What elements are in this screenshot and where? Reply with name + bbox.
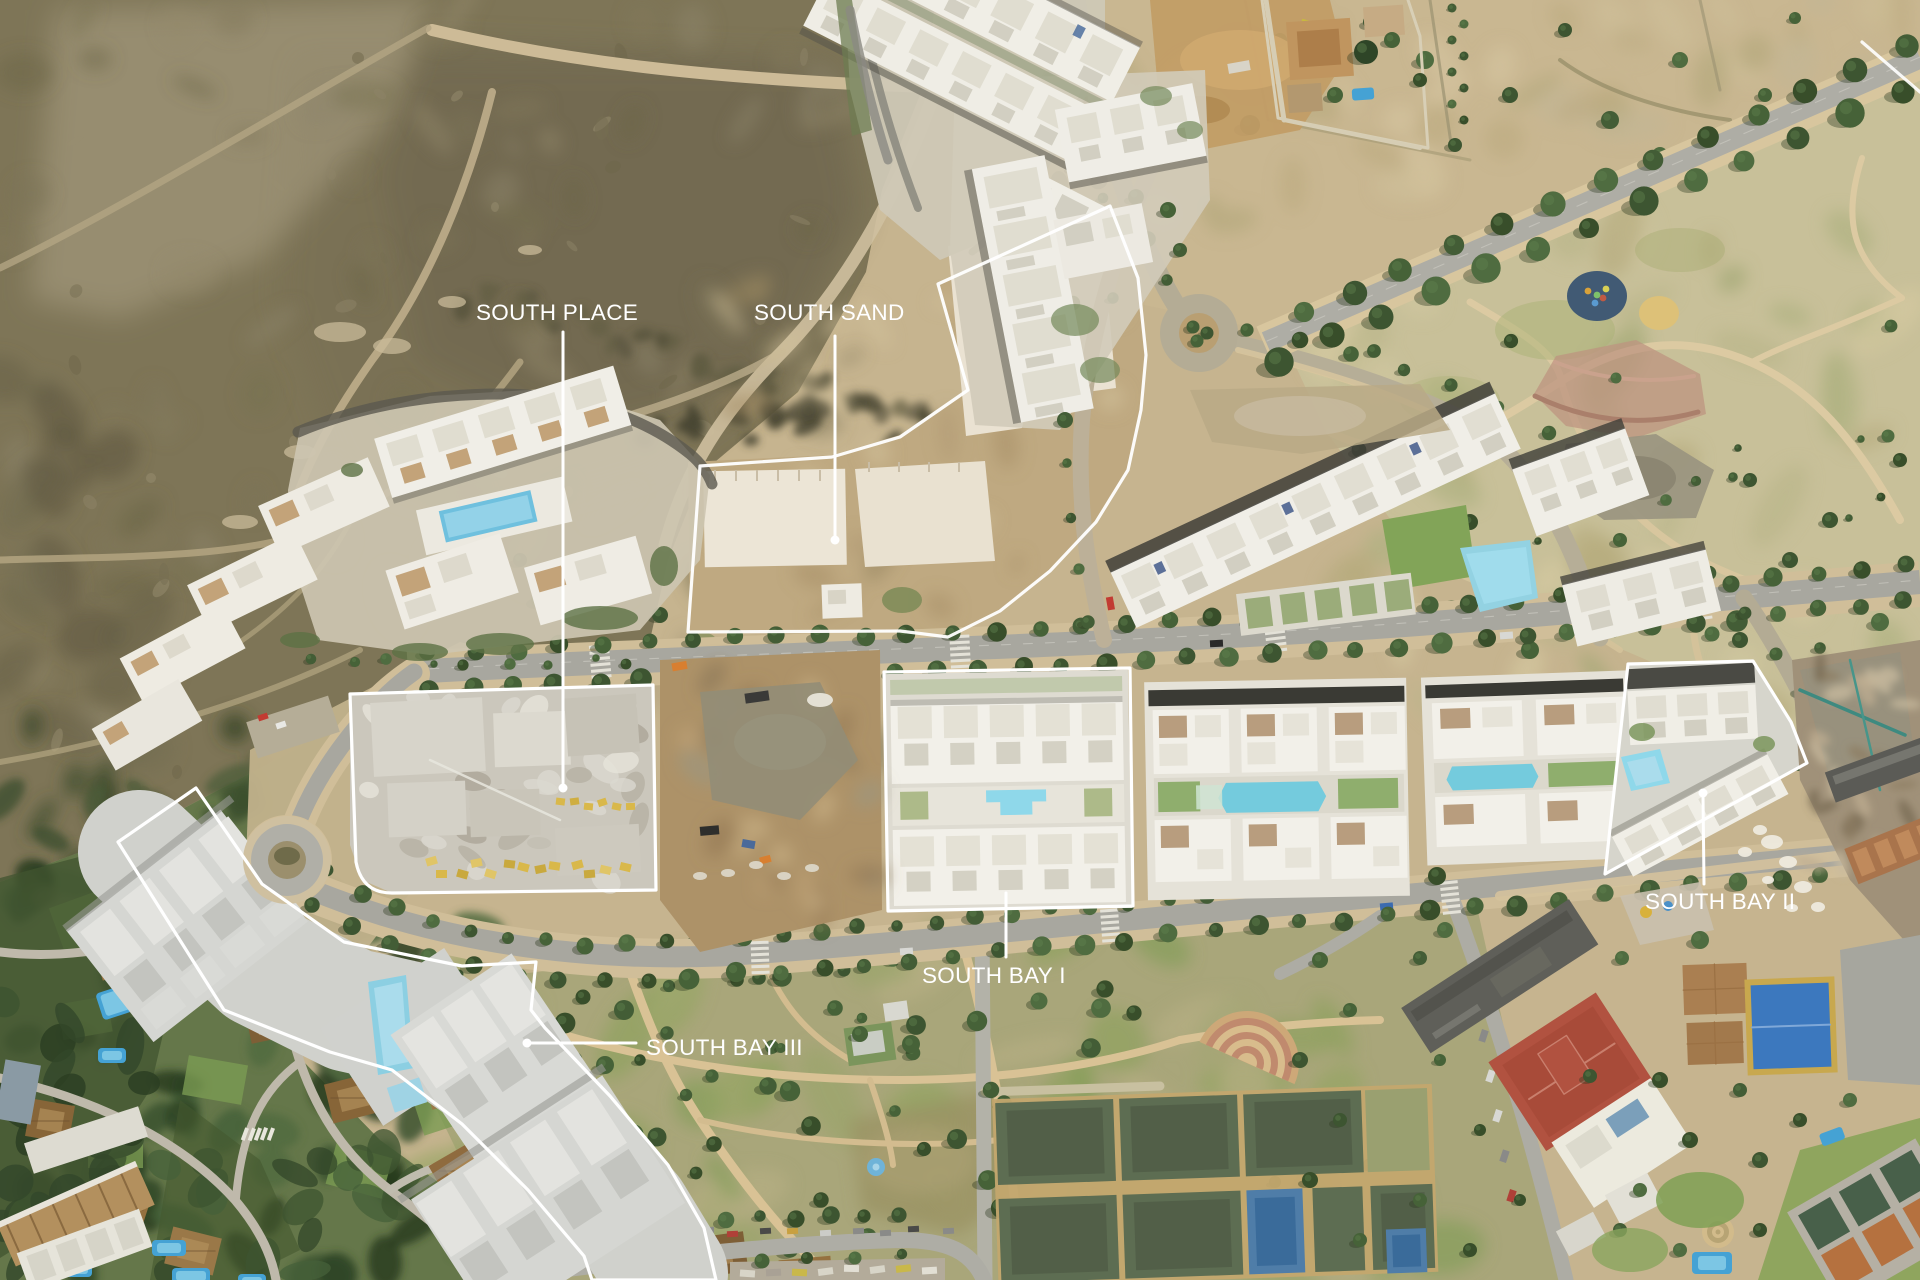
svg-text:SOUTH BAY III: SOUTH BAY III: [646, 1035, 803, 1060]
svg-text:SOUTH BAY II: SOUTH BAY II: [1645, 889, 1795, 914]
svg-text:SOUTH SAND: SOUTH SAND: [754, 300, 905, 325]
svg-text:SOUTH BAY I: SOUTH BAY I: [922, 963, 1066, 988]
svg-text:SOUTH PLACE: SOUTH PLACE: [476, 300, 638, 325]
